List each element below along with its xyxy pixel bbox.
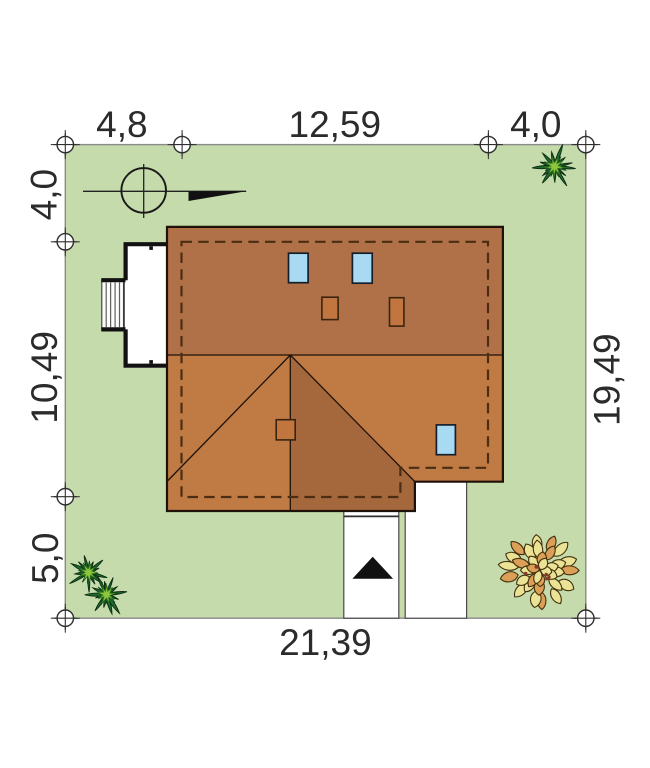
svg-text:10,49: 10,49 <box>24 331 65 424</box>
svg-text:4,0: 4,0 <box>24 169 65 220</box>
svg-text:12,59: 12,59 <box>289 104 382 145</box>
svg-text:4,8: 4,8 <box>96 104 147 145</box>
svg-text:5,0: 5,0 <box>25 533 66 584</box>
svg-text:21,39: 21,39 <box>279 622 372 663</box>
svg-text:4,0: 4,0 <box>510 104 561 145</box>
svg-text:19,49: 19,49 <box>587 333 628 426</box>
